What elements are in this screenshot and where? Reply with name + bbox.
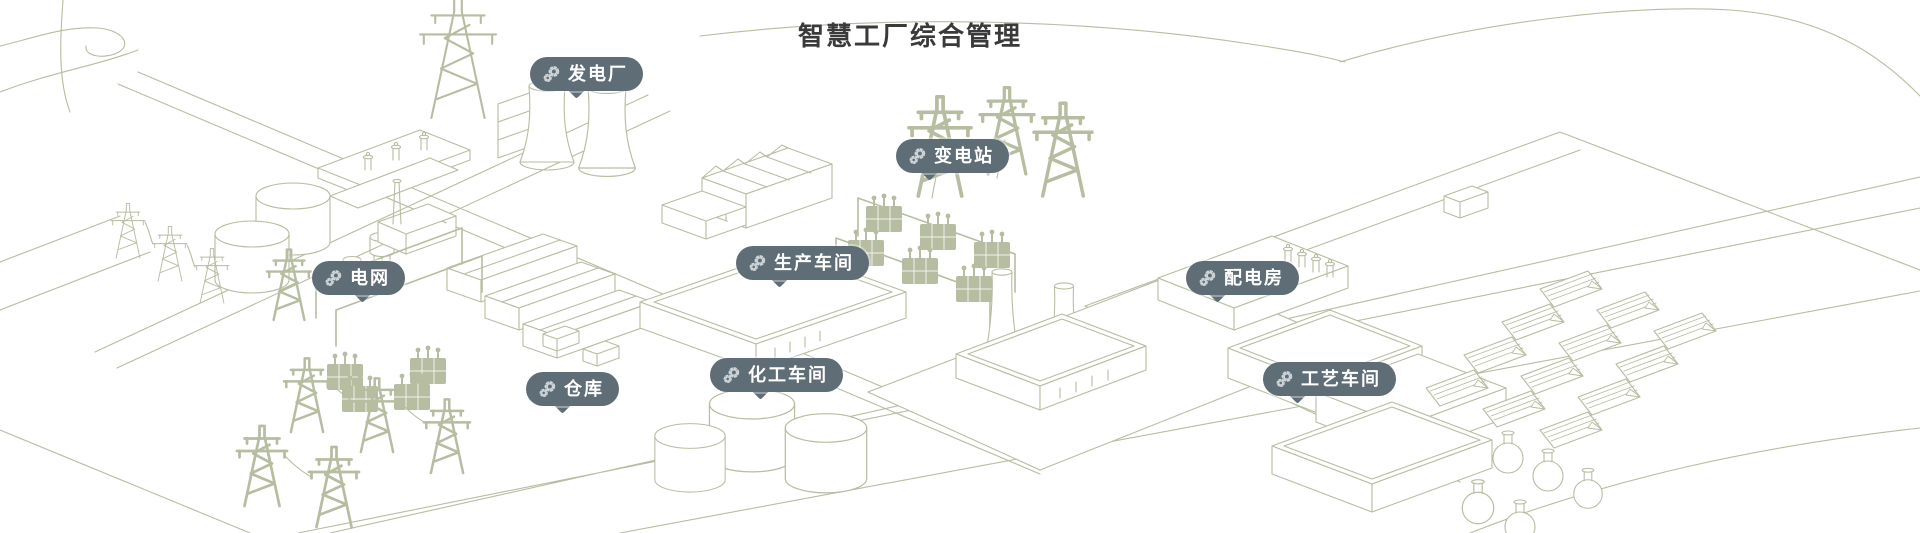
pin-process-workshop[interactable]: 工艺车间 (1263, 362, 1396, 396)
gears-icon (538, 380, 557, 399)
pin-power-grid[interactable]: 电网 (312, 261, 405, 295)
gears-icon (722, 366, 741, 385)
gears-icon (748, 254, 767, 273)
gears-icon (324, 269, 343, 288)
pin-label: 工艺车间 (1301, 362, 1381, 396)
gears-icon (1275, 370, 1294, 389)
pin-label: 仓库 (564, 372, 604, 406)
gears-icon (1198, 269, 1217, 288)
pin-label: 生产车间 (774, 246, 854, 280)
gears-icon (542, 65, 561, 84)
pin-label: 配电房 (1224, 261, 1284, 295)
pin-production-workshop[interactable]: 生产车间 (736, 246, 869, 280)
pin-label: 电网 (350, 261, 390, 295)
pin-warehouse[interactable]: 仓库 (526, 372, 619, 406)
pin-label: 发电厂 (568, 57, 628, 91)
pin-power-plant[interactable]: 发电厂 (530, 57, 643, 91)
pin-substation[interactable]: 变电站 (896, 139, 1009, 173)
pin-layer: 发电厂变电站电网生产车间配电房仓库化工车间工艺车间 (0, 0, 1920, 533)
pin-distribution-room[interactable]: 配电房 (1186, 261, 1299, 295)
pin-chemical-workshop[interactable]: 化工车间 (710, 358, 843, 392)
pin-label: 化工车间 (748, 358, 828, 392)
pin-label: 变电站 (934, 139, 994, 173)
gears-icon (908, 147, 927, 166)
smart-factory-dashboard: 智慧工厂综合管理 发电厂变电站电网生产车间配电房仓库化工车间工艺车间 (0, 0, 1920, 533)
